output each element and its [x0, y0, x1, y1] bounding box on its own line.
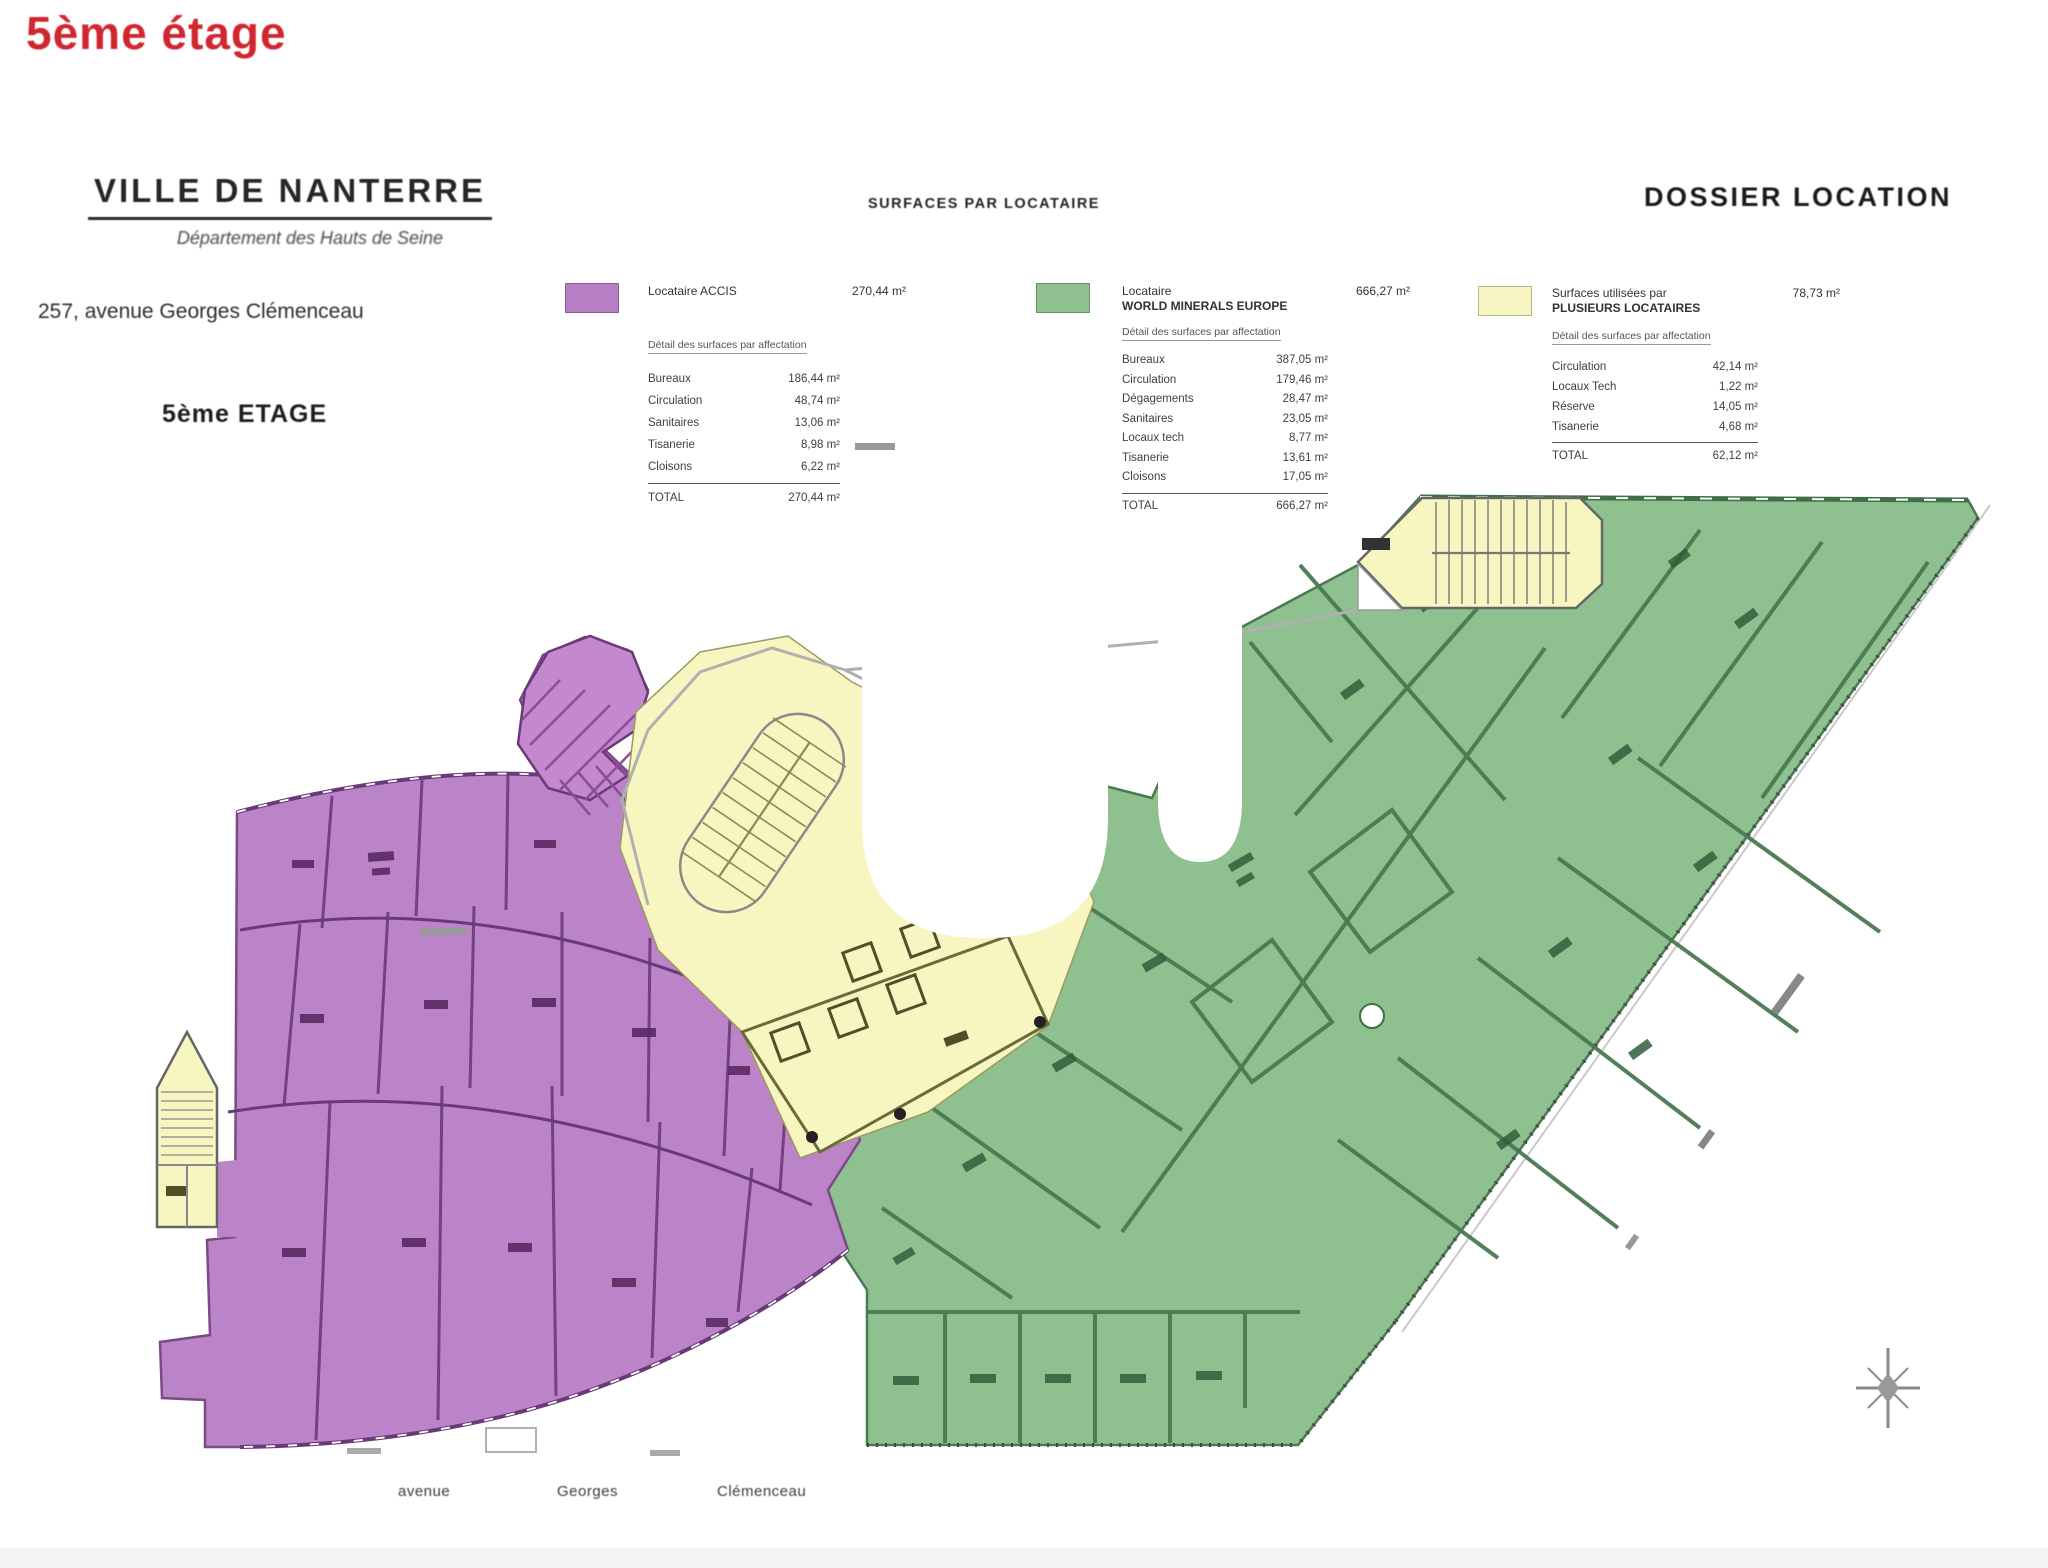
street-labels: avenue Georges Clémenceau [398, 1483, 806, 1500]
door-dot [894, 1108, 906, 1120]
stair-label-dash [1362, 538, 1390, 550]
street-label-georges: Georges [557, 1483, 618, 1500]
street-label-avenue: avenue [398, 1483, 450, 1500]
column-circle [1360, 1004, 1384, 1028]
facade-notch [486, 1428, 536, 1452]
street-label-clemenceau: Clémenceau [717, 1483, 806, 1500]
left-stair-tower [157, 1032, 217, 1227]
tower-connector [217, 1160, 237, 1237]
compass-star-icon [1856, 1348, 1920, 1428]
floor-plan-svg: avenue Georges Clémenceau [0, 0, 2048, 1568]
door-dot [806, 1131, 818, 1143]
green-stairwell [1358, 498, 1602, 610]
tower-label-dash [166, 1186, 186, 1196]
door-dot [1034, 1016, 1046, 1028]
scan-edge-strip [0, 1548, 2048, 1568]
scanned-floorplan-page: 5ème étage VILLE DE NANTERRE Département… [0, 0, 2048, 1568]
